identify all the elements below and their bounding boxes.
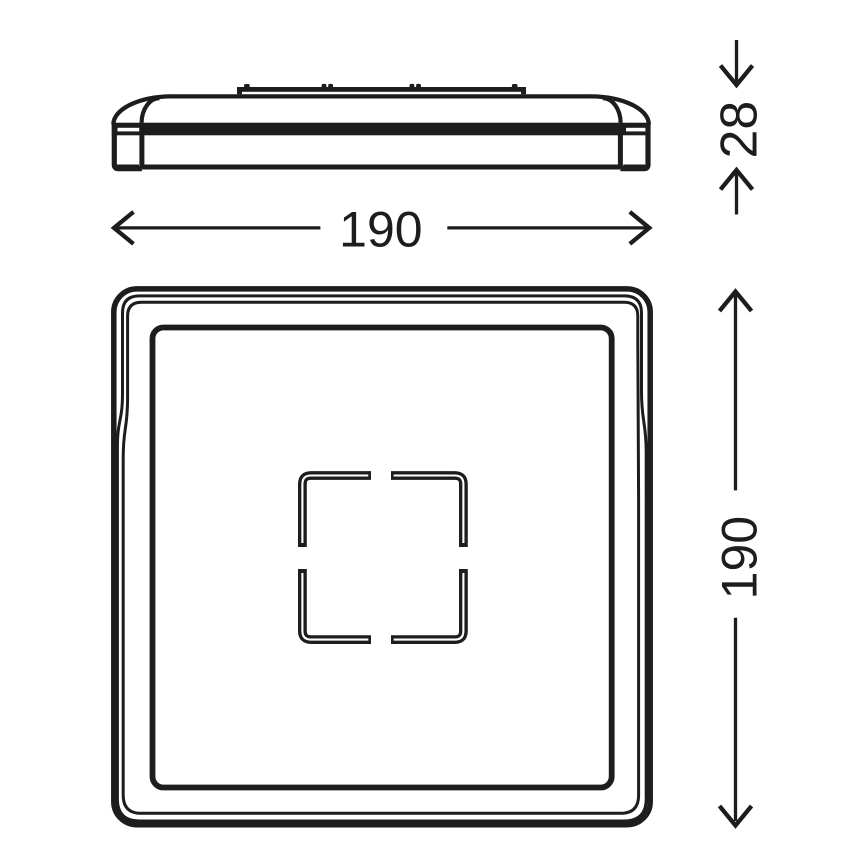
svg-text:190: 190 [711, 516, 767, 599]
svg-text:28: 28 [711, 101, 769, 159]
svg-text:190: 190 [339, 202, 422, 258]
